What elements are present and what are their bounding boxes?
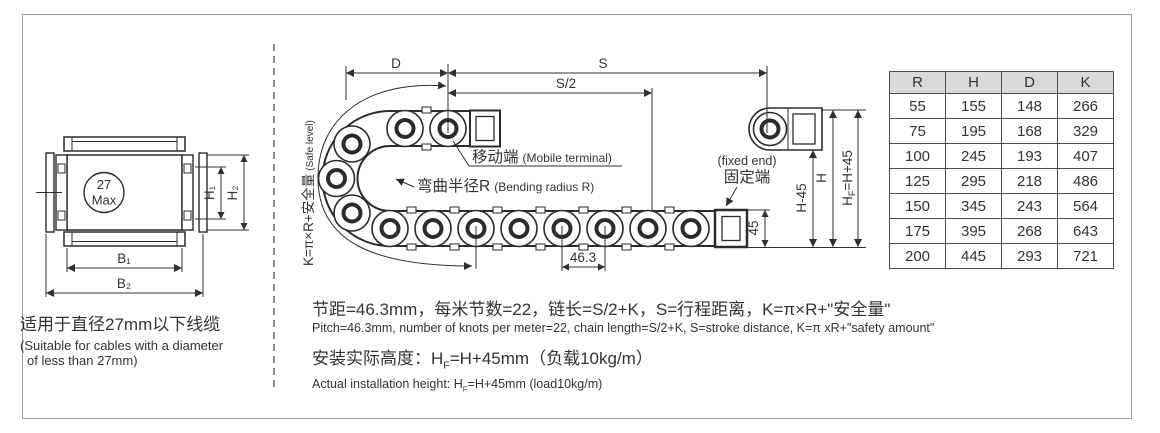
floating-fixed-end: [749, 108, 822, 150]
table-cell: 243: [1002, 194, 1058, 219]
dim-h1-label: H₁: [202, 185, 217, 200]
table-cell: 407: [1058, 144, 1114, 169]
table-cell: 643: [1058, 219, 1114, 244]
dim-45-label: 45: [746, 220, 761, 235]
bending-radius-label: 弯曲半径R(Bending radius R): [417, 177, 594, 195]
table-cell: 266: [1058, 94, 1114, 119]
table-cell: 200: [890, 244, 946, 269]
table-cell: 168: [1002, 119, 1058, 144]
dim-s2-label: S/2: [556, 76, 576, 91]
pitch-note-cn: 节距=46.3mm，每米节数=22，链长=S/2+K，S=行程距离，K=π×R+…: [312, 299, 934, 320]
col-header-d: D: [1002, 72, 1058, 94]
table-row: 100245193407: [890, 144, 1114, 169]
dim-h-label: H: [814, 173, 829, 183]
fixed-end-label-cn: 固定端: [724, 168, 771, 186]
col-header-h: H: [946, 72, 1002, 94]
table-cell: 293: [1002, 244, 1058, 269]
table-row: 125295218486: [890, 169, 1114, 194]
table-cell: 721: [1058, 244, 1114, 269]
table-cell: 345: [946, 194, 1002, 219]
mobile-terminal-label: 移动端(Mobile terminal): [472, 148, 612, 166]
suitability-caption-cn: 适用于直径27mm以下线缆: [20, 314, 278, 336]
dim-h2-label: H₂: [225, 186, 240, 201]
table-cell: 268: [1002, 219, 1058, 244]
height-note-en: Actual installation height: HF=H+45mm (l…: [312, 377, 934, 397]
spec-table: R H D K 55155148266751951683291002451934…: [889, 71, 1114, 269]
dim-b1-label: B₁: [117, 251, 131, 266]
table-cell: 218: [1002, 169, 1058, 194]
table-cell: 75: [890, 119, 946, 144]
spec-notes: 节距=46.3mm，每米节数=22，链长=S/2+K，S=行程距离，K=π×R+…: [312, 299, 934, 397]
table-cell: 150: [890, 194, 946, 219]
suitability-caption-en-line2: of less than 27mm): [20, 353, 278, 368]
mobile-terminal-bracket: [470, 111, 500, 147]
table-cell: 155: [946, 94, 1002, 119]
spec-table-header: R H D K: [890, 72, 1114, 94]
table-cell: 193: [1002, 144, 1058, 169]
table-cell: 445: [946, 244, 1002, 269]
col-header-k: K: [1058, 72, 1114, 94]
table-row: 175395268643: [890, 219, 1114, 244]
table-cell: 295: [946, 169, 1002, 194]
table-cell: 395: [946, 219, 1002, 244]
max-cable-unit: Max: [92, 193, 117, 208]
dim-b2-label: B₂: [117, 276, 131, 291]
table-row: 55155148266: [890, 94, 1114, 119]
table-cell: 100: [890, 144, 946, 169]
table-row: 150345243564: [890, 194, 1114, 219]
col-header-r: R: [890, 72, 946, 94]
table-cell: 486: [1058, 169, 1114, 194]
table-cell: 245: [946, 144, 1002, 169]
suitability-caption-en-line1: (Suitable for cables with a diameter: [20, 338, 278, 353]
table-cell: 125: [890, 169, 946, 194]
suitability-caption: 适用于直径27mm以下线缆 (Suitable for cables with …: [20, 314, 278, 368]
table-cell: 195: [946, 119, 1002, 144]
cross-section-body: 27 Max: [36, 137, 207, 246]
table-cell: 175: [890, 219, 946, 244]
spec-table-body: 5515514826675195168329100245193407125295…: [890, 94, 1114, 269]
table-cell: 55: [890, 94, 946, 119]
dim-h45-label: H-45: [794, 183, 809, 212]
table-cell: 564: [1058, 194, 1114, 219]
dim-s-label: S: [598, 56, 607, 71]
table-cell: 148: [1002, 94, 1058, 119]
fixed-end-bracket: [715, 210, 747, 247]
dim-pitch-label: 46.3: [570, 250, 596, 265]
datasheet-canvas: 27 Max H₁ H₂ B₁ B₂ 适用于直径27mm以下线缆 (Suitab…: [0, 0, 1160, 433]
table-row: 200445293721: [890, 244, 1114, 269]
cross-section-drawing: 27 Max H₁ H₂ B₁ B₂: [30, 95, 280, 307]
table-row: 75195168329: [890, 119, 1114, 144]
safe-level-label: K=π×R+安全量(Safe level): [300, 120, 316, 266]
fixed-end-label-en: (fixed end): [717, 154, 776, 168]
dim-d-label: D: [391, 56, 401, 71]
dim-hf-label: HF=H+45: [840, 150, 857, 206]
height-note-cn: 安装实际高度：HF=H+45mm（负载10kg/m）: [312, 348, 934, 376]
max-cable-value: 27: [97, 177, 111, 192]
pitch-note-en: Pitch=46.3mm, number of knots per meter=…: [312, 321, 934, 336]
table-cell: 329: [1058, 119, 1114, 144]
drag-chain-drawing: D S S/2 46.3 45 H-45 H HF=H+45 移动端(Mobil…: [290, 30, 880, 302]
